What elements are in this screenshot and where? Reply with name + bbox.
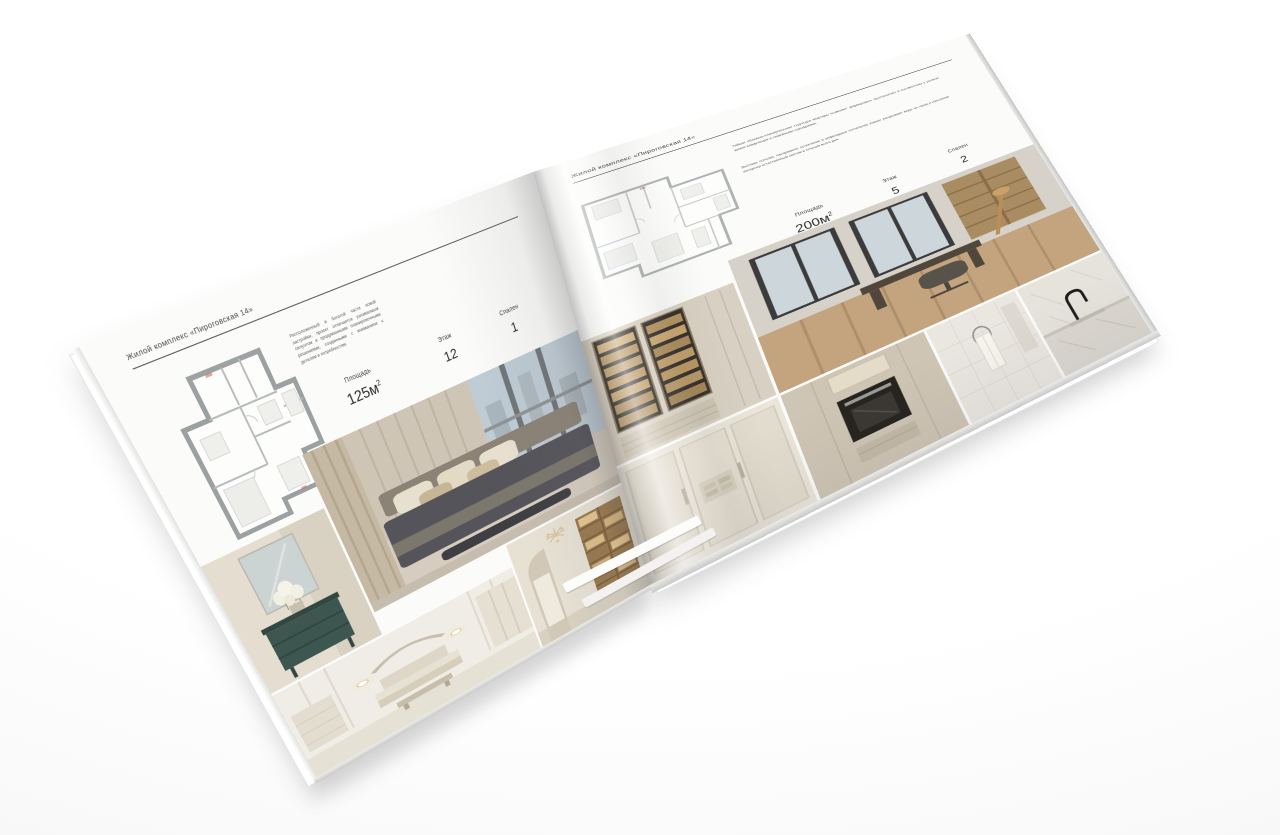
stat-bedrooms: Спален 1 (485, 298, 539, 345)
brochure-mockup-scene: Жилой комплекс «Пироговская 14» Располож… (0, 0, 1280, 835)
apartment-description: Расположенный в богатой части новой заст… (288, 299, 387, 366)
stat-area: Площадь 125м2 (322, 358, 402, 417)
stat-floor: Этаж 12 (422, 326, 474, 372)
stat-area-value: 125м2 (328, 371, 402, 417)
floor-plan-200 (572, 150, 760, 301)
